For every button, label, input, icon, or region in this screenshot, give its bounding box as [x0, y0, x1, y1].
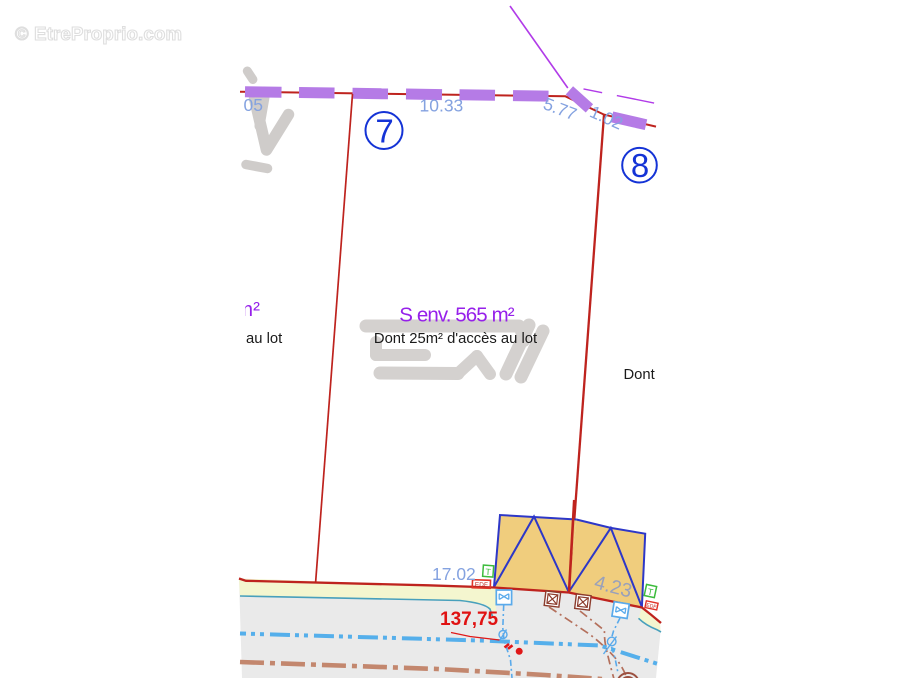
- svg-text:1.02: 1.02: [587, 101, 626, 133]
- svg-text:au lot: au lot: [246, 331, 282, 347]
- svg-text:7: 7: [375, 113, 393, 150]
- svg-text:© EtreProprio.com: © EtreProprio.com: [15, 23, 182, 44]
- svg-text:Dont: Dont: [624, 367, 655, 383]
- svg-text:S env. 565 m²: S env. 565 m²: [399, 304, 514, 327]
- svg-text:m²: m²: [236, 298, 260, 321]
- svg-text:Dont 25m² d'accès au lot: Dont 25m² d'accès au lot: [374, 331, 537, 347]
- svg-text:05: 05: [244, 95, 263, 115]
- svg-text:8: 8: [631, 147, 649, 184]
- svg-text:EDF: EDF: [475, 581, 488, 588]
- svg-text:17.02: 17.02: [432, 564, 476, 584]
- svg-text:EDF: EDF: [646, 603, 657, 611]
- svg-text:10.33: 10.33: [420, 96, 464, 116]
- svg-text:137,75: 137,75: [440, 609, 499, 630]
